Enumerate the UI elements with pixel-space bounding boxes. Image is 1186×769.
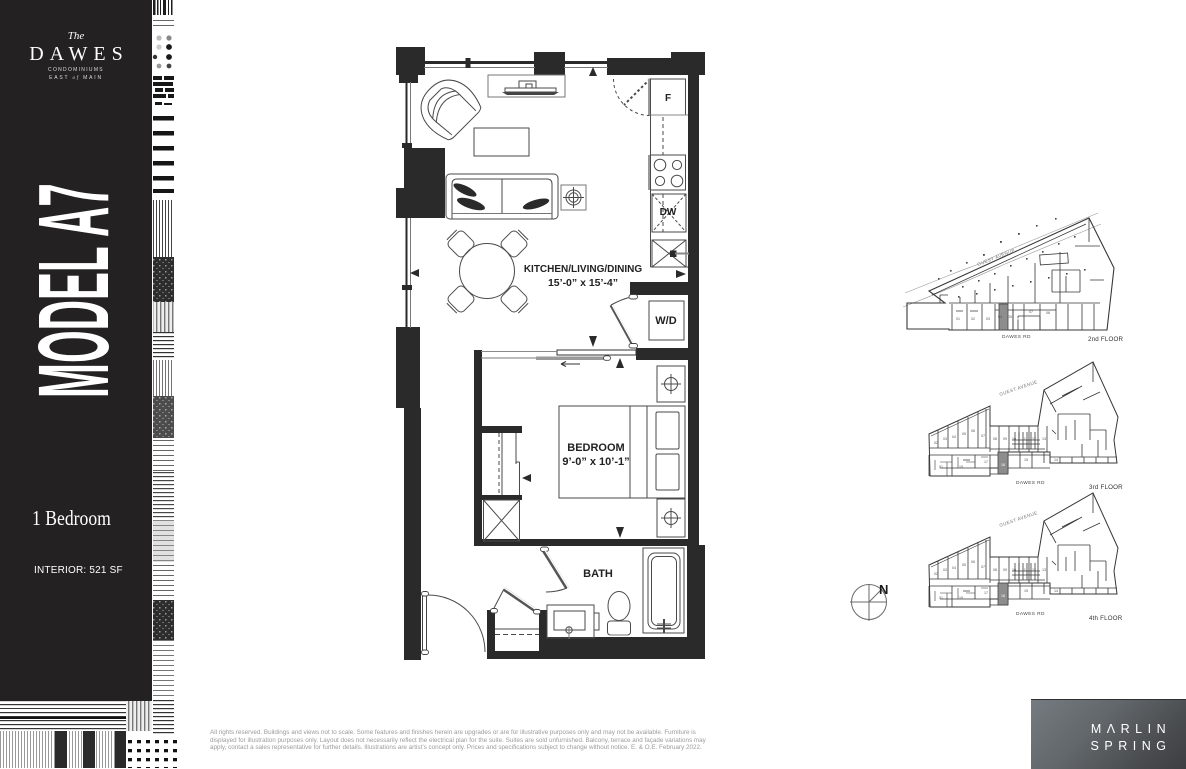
svg-text:BATH: BATH bbox=[583, 568, 613, 580]
svg-text:F: F bbox=[665, 93, 671, 104]
svg-text:02: 02 bbox=[971, 317, 975, 321]
svg-text:06: 06 bbox=[1016, 317, 1020, 321]
svg-text:KITCHEN/LIVING/DINING: KITCHEN/LIVING/DINING bbox=[524, 264, 643, 275]
svg-text:W/D: W/D bbox=[655, 315, 676, 327]
svg-text:BEDROOM: BEDROOM bbox=[567, 442, 624, 454]
svg-text:01: 01 bbox=[956, 317, 960, 321]
svg-text:04: 04 bbox=[998, 315, 1002, 319]
svg-text:4th FLOOR: 4th FLOOR bbox=[1089, 615, 1123, 622]
svg-text:03: 03 bbox=[986, 317, 990, 321]
svg-text:DW: DW bbox=[660, 207, 677, 218]
svg-text:15’-0” x 15’-4”: 15’-0” x 15’-4” bbox=[548, 277, 618, 289]
svg-text:N: N bbox=[879, 582, 888, 597]
svg-text:GUEST AVENUE: GUEST AVENUE bbox=[977, 248, 1016, 267]
svg-text:05: 05 bbox=[1008, 315, 1012, 319]
svg-text:2nd FLOOR: 2nd FLOOR bbox=[1088, 336, 1123, 343]
svg-text:08: 08 bbox=[1046, 311, 1050, 315]
svg-text:9’-0” x 10’-1”: 9’-0” x 10’-1” bbox=[562, 456, 629, 468]
svg-text:DAWES RD: DAWES RD bbox=[1002, 334, 1031, 340]
svg-text:3rd FLOOR: 3rd FLOOR bbox=[1089, 484, 1123, 491]
svg-text:07: 07 bbox=[1029, 310, 1033, 314]
